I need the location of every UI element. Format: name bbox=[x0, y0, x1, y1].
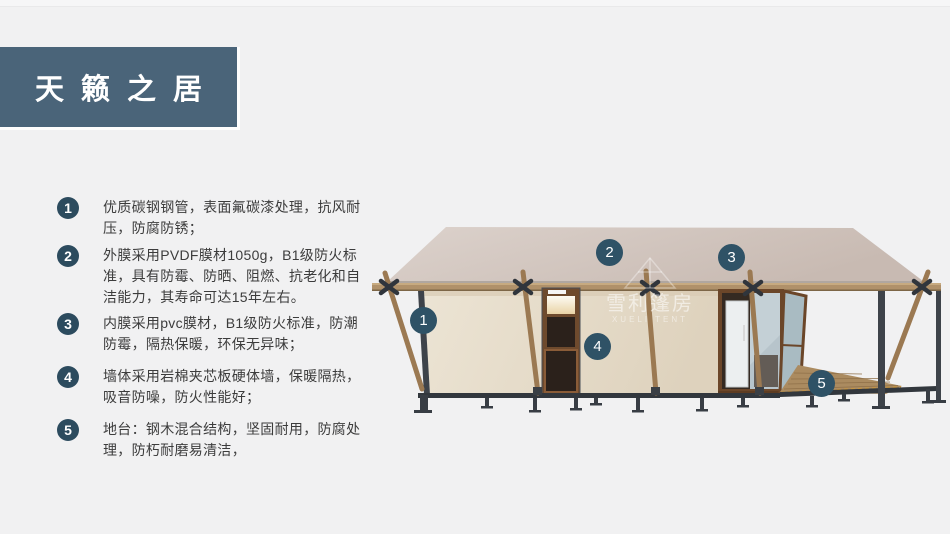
watermark-en: XUELI TENT bbox=[612, 315, 688, 324]
feature-text: 地台：钢木混合结构，坚固耐用，防腐处理，防朽耐磨易清洁， bbox=[103, 419, 361, 461]
page-top-strip bbox=[0, 0, 950, 7]
feature-number-badge: 3 bbox=[57, 313, 79, 335]
base-rail bbox=[418, 393, 780, 398]
feature-item-4: 4 墙体采用岩棉夹芯板硬体墙，保暖隔热，吸音防噪，防火性能好； bbox=[57, 366, 361, 408]
callout-1: 1 bbox=[410, 307, 437, 334]
callout-3: 3 bbox=[718, 244, 745, 271]
page-title: 天籁之居 bbox=[0, 47, 240, 130]
entrance-door bbox=[542, 288, 580, 396]
feature-item-1: 1 优质碳钢钢管，表面氟碳漆处理，抗风耐压，防腐防锈； bbox=[57, 197, 361, 239]
feature-item-5: 5 地台：钢木混合结构，坚固耐用，防腐处理，防朽耐磨易清洁， bbox=[57, 419, 361, 461]
callout-2: 2 bbox=[596, 239, 623, 266]
callout-5: 5 bbox=[808, 370, 835, 397]
end-post bbox=[936, 291, 941, 401]
feature-text: 墙体采用岩棉夹芯板硬体墙，保暖隔热，吸音防噪，防火性能好； bbox=[103, 366, 361, 408]
feature-item-2: 2 外膜采用PVDF膜材1050g，B1级防火标准，具有防霉、防晒、阻燃、抗老化… bbox=[57, 245, 361, 308]
page-title-text: 天籁之居 bbox=[18, 66, 219, 108]
watermark-cn: 雪利篷房 bbox=[606, 292, 694, 315]
porch-post bbox=[878, 291, 885, 407]
inner-white-door bbox=[726, 301, 748, 387]
feature-number-badge: 2 bbox=[57, 245, 79, 267]
feature-text: 内膜采用pvc膜材，B1级防火标准，防潮防霉，隔热保暖，环保无异味； bbox=[103, 313, 361, 355]
callout-4: 4 bbox=[584, 333, 611, 360]
roof-canopy bbox=[388, 227, 923, 281]
feature-text: 外膜采用PVDF膜材1050g，B1级防火标准，具有防霉、防晒、阻燃、抗老化和自… bbox=[103, 245, 361, 308]
feature-number-badge: 5 bbox=[57, 419, 79, 441]
feature-item-3: 3 内膜采用pvc膜材，B1级防火标准，防潮防霉，隔热保暖，环保无异味； bbox=[57, 313, 361, 355]
tent-illustration: 雪利篷房 XUELI TENT bbox=[370, 195, 950, 445]
feature-number-badge: 4 bbox=[57, 366, 79, 388]
tent-diagram: 雪利篷房 XUELI TENT bbox=[370, 195, 950, 445]
feature-text: 优质碳钢钢管，表面氟碳漆处理，抗风耐压，防腐防锈； bbox=[103, 197, 361, 239]
feature-number-badge: 1 bbox=[57, 197, 79, 219]
